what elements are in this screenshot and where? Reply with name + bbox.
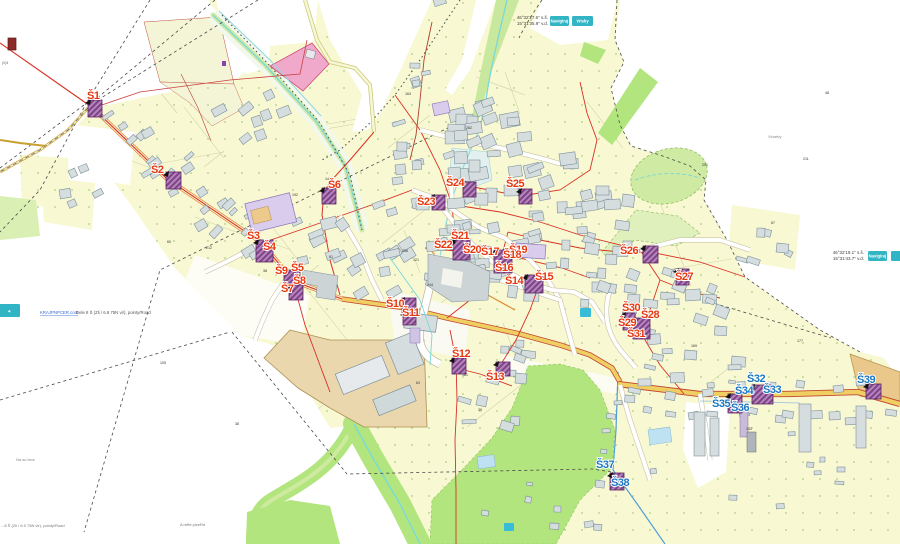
svg-text:Dele 8 Š (Zli / 6.9 75N vir),: Dele 8 Š (Zli / 6.9 75N vir), pointy/Roa…	[76, 310, 151, 315]
svg-text:(0)4: (0)4	[2, 61, 8, 65]
svg-text:282: 282	[466, 126, 472, 130]
svg-text:Š34: Š34	[735, 384, 754, 397]
svg-text:38: 38	[235, 422, 239, 426]
svg-text:105: 105	[160, 361, 166, 365]
svg-text:Š28: Š28	[641, 308, 659, 321]
svg-text:Š33: Š33	[763, 383, 781, 396]
svg-text:Vinarby: Vinarby	[768, 134, 782, 139]
svg-text:Navigiraj: Navigiraj	[551, 19, 569, 24]
svg-text:◄: ◄	[7, 309, 11, 314]
svg-text:67: 67	[771, 221, 775, 225]
svg-text:163: 163	[405, 92, 411, 96]
svg-text:A refte plzeRd: A refte plzeRd	[180, 522, 205, 527]
svg-text:Š13: Š13	[486, 370, 504, 383]
svg-text:Š3: Š3	[247, 229, 260, 242]
svg-text:Vrisky: Vrisky	[576, 19, 589, 24]
svg-text:Š30: Š30	[622, 301, 640, 314]
svg-text:Š7: Š7	[281, 282, 294, 295]
svg-text:244: 244	[427, 283, 433, 287]
svg-text:121: 121	[413, 258, 419, 262]
svg-text:Š23: Š23	[417, 195, 435, 208]
svg-text:Š36: Š36	[731, 401, 749, 414]
svg-text:177: 177	[797, 339, 803, 343]
svg-text:Š1: Š1	[87, 89, 100, 102]
svg-text:Š8: Š8	[293, 274, 306, 287]
svg-text:Na ac lece: Na ac lece	[16, 457, 36, 462]
svg-text:256: 256	[402, 249, 408, 253]
svg-text:Š4: Š4	[263, 240, 277, 253]
svg-text:Š27: Š27	[675, 270, 693, 283]
svg-text:Š20: Š20	[463, 243, 481, 256]
svg-text:81: 81	[329, 255, 333, 259]
svg-text:Š22: Š22	[434, 238, 452, 251]
svg-text:Š2: Š2	[151, 163, 164, 176]
svg-text:192: 192	[292, 193, 298, 197]
svg-text:212: 212	[206, 246, 212, 250]
svg-text:Š37: Š37	[596, 458, 614, 471]
svg-text:KRAJPNPCER.com: KRAJPNPCER.com	[40, 310, 79, 315]
svg-text:63: 63	[416, 381, 420, 385]
svg-text:Š18: Š18	[503, 248, 521, 261]
svg-text:Š14: Š14	[505, 274, 524, 287]
svg-text:Š15: Š15	[535, 270, 553, 283]
svg-text:15°31′35.9″ v.d.: 15°31′35.9″ v.d.	[517, 21, 548, 26]
svg-text:Š39: Š39	[857, 373, 875, 386]
svg-text:46°32′27.6″ s.š.: 46°32′27.6″ s.š.	[517, 15, 548, 20]
svg-text:38: 38	[263, 269, 267, 273]
svg-text:291: 291	[702, 163, 708, 167]
svg-text:Š24: Š24	[446, 176, 465, 189]
svg-text:...8 Š (Zli / 6.9 75N vir), po: ...8 Š (Zli / 6.9 75N vir), pointy/Road	[1, 523, 65, 528]
svg-text:Navigiraj: Navigiraj	[869, 254, 887, 259]
svg-text:Š17: Š17	[481, 245, 499, 258]
svg-text:39: 39	[478, 408, 482, 412]
svg-text:211: 211	[803, 157, 809, 161]
svg-text:Š31: Š31	[627, 327, 645, 340]
svg-text:Š6: Š6	[328, 178, 341, 191]
svg-text:Š9: Š9	[275, 264, 288, 277]
svg-text:Š16: Š16	[495, 261, 513, 274]
svg-text:Š12: Š12	[452, 347, 470, 360]
svg-text:60: 60	[167, 240, 171, 244]
svg-text:169: 169	[691, 344, 697, 348]
svg-text:Š35: Š35	[712, 397, 730, 410]
svg-text:Š11: Š11	[402, 306, 420, 319]
svg-text:Š38: Š38	[611, 476, 629, 489]
svg-text:152: 152	[746, 427, 752, 431]
svg-text:Š25: Š25	[506, 177, 524, 190]
svg-text:46°32′19.1″ s.š.: 46°32′19.1″ s.š.	[833, 250, 864, 255]
svg-text:Š5: Š5	[291, 261, 304, 274]
svg-text:Š21: Š21	[451, 229, 469, 242]
svg-text:15°31′43.7″ v.d.: 15°31′43.7″ v.d.	[833, 256, 864, 261]
svg-text:Š26: Š26	[620, 244, 638, 257]
svg-text:48: 48	[825, 91, 829, 95]
